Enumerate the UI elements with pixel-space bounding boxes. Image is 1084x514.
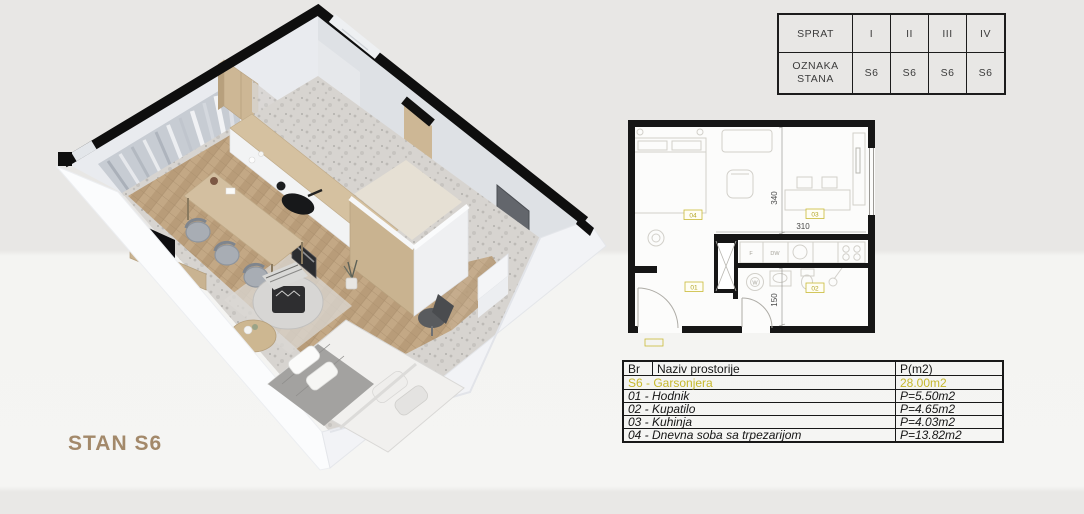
unit-header-line2: STANA bbox=[779, 73, 852, 86]
header-br: Br bbox=[623, 361, 653, 376]
kettle bbox=[277, 182, 286, 191]
label-room-01: 01 bbox=[690, 285, 698, 292]
floor-cell-4: IV bbox=[967, 14, 1006, 53]
summary-name: S6 - Garsonjera bbox=[623, 376, 896, 390]
floor-header-cell: SPRAT bbox=[778, 14, 853, 53]
unit-cell-1: S6 bbox=[853, 53, 891, 95]
page: NETFLIX bbox=[0, 0, 1084, 514]
label-washer: W bbox=[752, 281, 758, 287]
render-3d: NETFLIX bbox=[0, 0, 620, 514]
header-area: P(m2) bbox=[896, 361, 1004, 376]
unit-header-cell: OZNAKA STANA bbox=[778, 53, 853, 95]
room-areas-table: Br Naziv prostorije P(m2) S6 - Garsonjer… bbox=[622, 360, 1004, 443]
floor-cell-1: I bbox=[853, 14, 891, 53]
unit-cell-2: S6 bbox=[891, 53, 929, 95]
header-name: Naziv prostorije bbox=[653, 361, 896, 376]
unit-header-line1: OZNAKA bbox=[779, 60, 852, 73]
summary-area: 28.00m2 bbox=[896, 376, 1004, 390]
vase bbox=[210, 177, 218, 185]
room-row-area: P=4.65m2 bbox=[896, 403, 1004, 416]
floorplan-svg: 340 310 150 bbox=[620, 110, 888, 350]
room-row-name: 03 - Kuhinja bbox=[623, 416, 896, 429]
room-row-area: P=13.82m2 bbox=[896, 429, 1004, 443]
unit-cell-4: S6 bbox=[967, 53, 1006, 95]
floor-matrix-table: SPRAT I II III IV OZNAKA STANA S6 S6 S6 … bbox=[777, 13, 1006, 95]
room-row-name: 04 - Dnevna soba sa trpezarijom bbox=[623, 429, 896, 443]
room-row-area: P=4.03m2 bbox=[896, 416, 1004, 429]
label-dishwasher: DW bbox=[770, 251, 780, 257]
plan-title: STAN S6 bbox=[68, 432, 162, 455]
dim-150: 150 bbox=[770, 293, 779, 307]
label-room-04: 04 bbox=[689, 213, 697, 220]
room-row-area: P=5.50m2 bbox=[896, 390, 1004, 403]
room-row-name: 02 - Kupatilo bbox=[623, 403, 896, 416]
unit-cell-3: S6 bbox=[929, 53, 967, 95]
floor-cell-3: III bbox=[929, 14, 967, 53]
room-row-name: 01 - Hodnik bbox=[623, 390, 896, 403]
label-room-02: 02 bbox=[811, 286, 819, 293]
floor-cell-2: II bbox=[891, 14, 929, 53]
entrance-marker bbox=[645, 339, 663, 346]
shaft bbox=[716, 241, 736, 291]
dim-310: 310 bbox=[796, 222, 810, 231]
dim-340: 340 bbox=[770, 191, 779, 205]
label-room-03: 03 bbox=[811, 212, 819, 219]
